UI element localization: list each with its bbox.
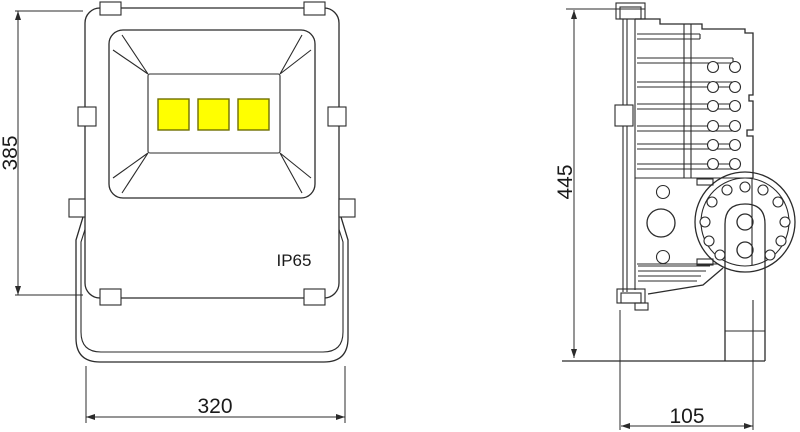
side-front-frame [623,19,635,292]
tab-bottom-left [100,289,121,305]
technical-drawing-page: IP65 385 320 [0,0,800,432]
ip-rating-label: IP65 [277,251,312,270]
side-bottom-cap [617,289,648,310]
bracket-arm-side [725,204,765,361]
dim-side-height: 445 [554,9,645,358]
tab-top-left [100,2,121,15]
tab-side-upper-left [78,107,96,126]
led-array [158,99,269,130]
side-top-cap [616,3,645,19]
cable-gland [647,209,675,237]
bolt-hole-grid [708,62,741,170]
led-chip [158,99,189,130]
floodlight-drawing: IP65 385 320 [0,0,800,432]
front-view: IP65 385 320 [0,2,355,423]
dim-label-side-width: 105 [669,405,704,428]
side-clip [615,105,633,126]
tab-top-right [304,2,325,15]
tab-bottom-right [304,289,325,305]
side-view: 445 105 [554,3,795,430]
heatsink-fins [637,24,733,178]
dim-label-side-height: 445 [554,164,577,199]
arm-hole [737,242,753,258]
pivot-disc-holes [700,182,790,260]
led-chip [198,99,229,130]
tab-side-upper-right [328,107,346,126]
dim-front-width: 320 [86,366,345,423]
dim-side-width: 105 [620,310,753,430]
housing-hole-small [657,251,670,264]
bracket-pivot-left [69,199,85,217]
housing-outline [635,19,753,178]
pivot-bolt-hole [737,214,753,230]
dim-front-height: 385 [0,11,83,295]
dim-label-front-height: 385 [0,135,22,170]
dim-label-front-width: 320 [197,395,232,418]
housing-hole-small [657,186,670,199]
bracket-pivot-right [339,199,355,217]
led-chip [238,99,269,130]
